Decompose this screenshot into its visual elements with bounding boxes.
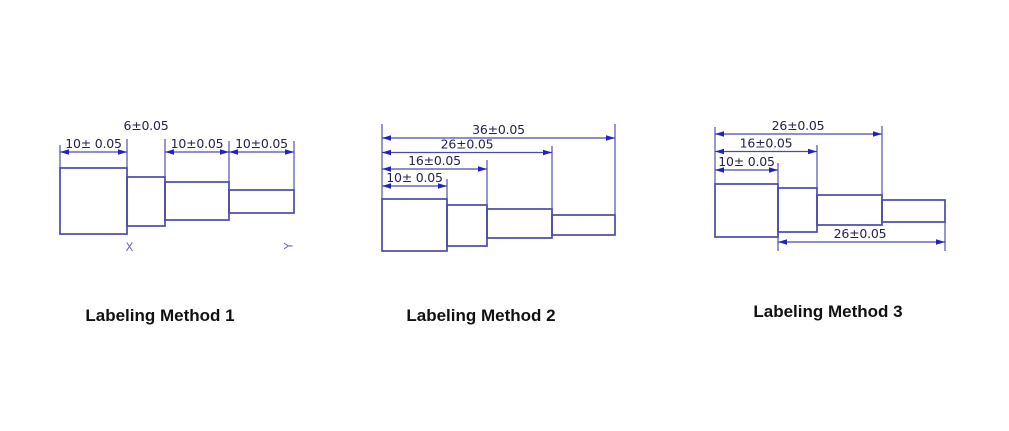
shaft-segment-4 bbox=[552, 215, 615, 235]
dimension-label: 26±0.05 bbox=[441, 137, 494, 152]
shaft-segment-3 bbox=[165, 182, 229, 220]
shaft-segment-4 bbox=[882, 200, 945, 222]
shaft-drawings-svg: 10± 0.05 6±0.05 10±0.05 10±0.05 X Y bbox=[0, 0, 1009, 431]
arrowhead bbox=[808, 149, 817, 154]
dimension-label: 10±0.05 bbox=[235, 136, 288, 151]
dimension-label: 26±0.05 bbox=[772, 118, 825, 133]
dimension-label: 36±0.05 bbox=[472, 122, 525, 137]
arrowhead bbox=[382, 135, 391, 140]
shaft-segment-2 bbox=[778, 188, 817, 232]
arrowhead bbox=[778, 239, 787, 244]
dimension-label: 10± 0.05 bbox=[718, 154, 775, 169]
shaft-segment-3 bbox=[487, 209, 552, 238]
shaft-segment-3 bbox=[817, 195, 882, 225]
shaft-segment-2 bbox=[127, 177, 165, 226]
caption-method-2: Labeling Method 2 bbox=[406, 306, 555, 326]
arrowhead bbox=[382, 150, 391, 155]
labeling-method-3-drawing: 26±0.05 16±0.05 10± 0.05 26±0.05 bbox=[715, 118, 945, 251]
arrowhead bbox=[478, 166, 487, 171]
shaft-segment-2 bbox=[447, 205, 487, 246]
shaft-segment-1 bbox=[382, 199, 447, 251]
arrowhead bbox=[715, 131, 724, 136]
labeling-method-2-drawing: 36±0.05 26±0.05 16±0.05 10± 0.05 bbox=[382, 122, 615, 251]
dimension-label: 10± 0.05 bbox=[65, 136, 122, 151]
dimension-label: 16±0.05 bbox=[408, 153, 461, 168]
dimension-label: 6±0.05 bbox=[123, 118, 168, 133]
arrowhead bbox=[873, 131, 882, 136]
surface-mark-y-rotated: Y bbox=[282, 242, 296, 251]
arrowhead bbox=[606, 135, 615, 140]
labeling-method-1-drawing: 10± 0.05 6±0.05 10±0.05 10±0.05 X Y bbox=[60, 118, 296, 254]
shaft-segment-4 bbox=[229, 190, 294, 213]
dimension-label: 26±0.05 bbox=[834, 226, 887, 241]
caption-method-1: Labeling Method 1 bbox=[85, 306, 234, 326]
caption-method-3: Labeling Method 3 bbox=[753, 302, 902, 322]
dimension-label: 10± 0.05 bbox=[386, 170, 443, 185]
dimension-label: 10±0.05 bbox=[171, 136, 224, 151]
shaft-segment-1 bbox=[715, 184, 778, 237]
surface-mark-x: X bbox=[126, 240, 134, 254]
dimension-label: 16±0.05 bbox=[740, 136, 793, 151]
shaft-segment-1 bbox=[60, 168, 127, 234]
technical-drawing-canvas: 10± 0.05 6±0.05 10±0.05 10±0.05 X Y bbox=[0, 0, 1009, 431]
arrowhead bbox=[936, 239, 945, 244]
arrowhead bbox=[543, 150, 552, 155]
